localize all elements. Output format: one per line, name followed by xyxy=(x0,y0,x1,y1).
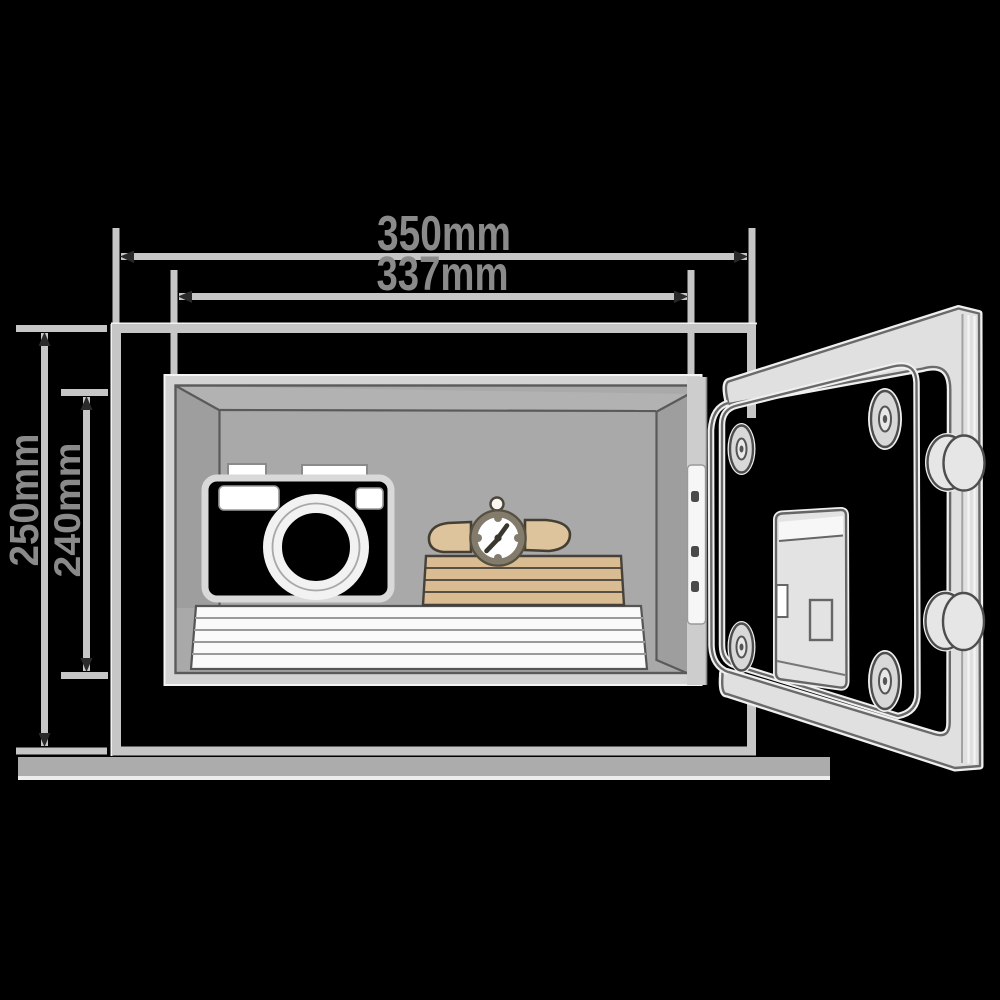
svg-text:250mm: 250mm xyxy=(1,434,47,567)
svg-text:240mm: 240mm xyxy=(47,443,88,578)
svg-text:337mm: 337mm xyxy=(377,248,509,301)
